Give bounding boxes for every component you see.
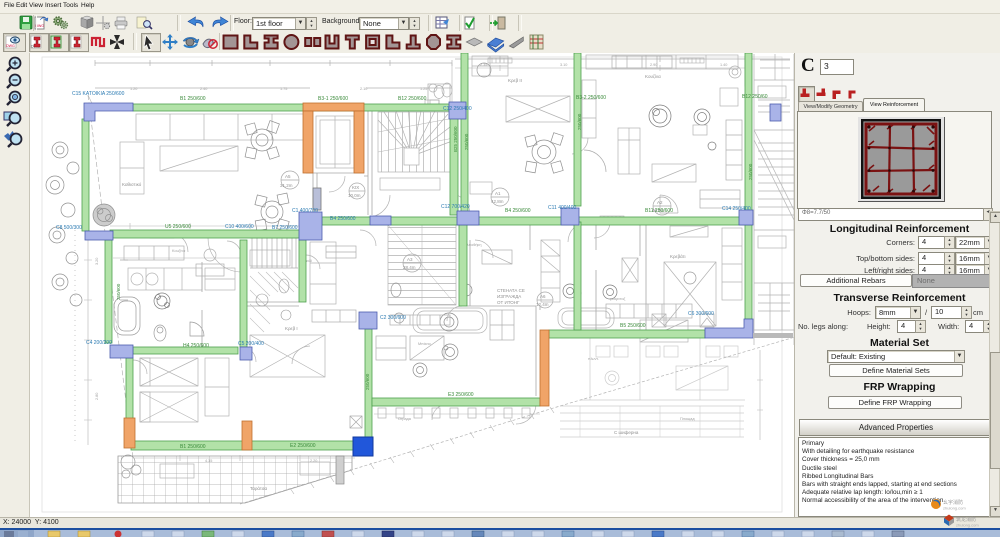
svg-text:C15 ΚΑΤΟΙΚΙΑ 250/600: C15 ΚΑΤΟΙΚΙΑ 250/600 <box>72 91 125 97</box>
svg-text:C6 300/600: C6 300/600 <box>688 311 714 317</box>
svg-text:C14 250/400: C14 250/400 <box>722 206 751 212</box>
svg-text:A6: A6 <box>540 294 546 299</box>
svg-text:ОТ ИТОНГ: ОТ ИТОНГ <box>497 300 520 305</box>
svg-text:Β3-2 250/600: Β3-2 250/600 <box>576 95 606 101</box>
svg-text:2.35: 2.35 <box>480 63 487 67</box>
svg-text:4.35: 4.35 <box>205 459 212 463</box>
svg-text:2.20: 2.20 <box>310 459 317 463</box>
svg-text:Κουζίνα: Κουζίνα <box>645 74 661 79</box>
svg-text:U5 250/600: U5 250/600 <box>165 224 191 230</box>
svg-text:2.90: 2.90 <box>650 63 657 67</box>
svg-text:A5: A5 <box>285 174 291 179</box>
svg-text:DWG: DWG <box>6 44 15 48</box>
svg-text:C8 500/300: C8 500/300 <box>56 225 82 231</box>
svg-text:Β1 250/600: Β1 250/600 <box>180 96 206 102</box>
svg-text:28,4m: 28,4m <box>403 265 416 270</box>
svg-text:3.10: 3.10 <box>560 63 567 67</box>
svg-text:1.40: 1.40 <box>720 63 727 67</box>
svg-text:1.25: 1.25 <box>420 87 427 91</box>
svg-text:πλυντ.: πλυντ. <box>588 357 599 361</box>
svg-text:Β11 250/600: Β11 250/600 <box>645 208 673 214</box>
svg-text:250/600: 250/600 <box>577 113 582 130</box>
svg-text:1.20: 1.20 <box>130 87 137 91</box>
svg-text:250/600: 250/600 <box>365 373 370 390</box>
svg-text:C11 400/400: C11 400/400 <box>548 205 576 211</box>
svg-text:Β1 250/600: Β1 250/600 <box>180 444 206 450</box>
svg-text:C2 300/600: C2 300/600 <box>380 315 406 321</box>
svg-text:Κρεβ II: Κρεβ II <box>508 78 522 83</box>
svg-text:Κρεβάτι: Κρεβάτι <box>670 253 686 259</box>
svg-text:Μπάνιο: Μπάνιο <box>418 342 431 346</box>
svg-text:1.75: 1.75 <box>280 87 287 91</box>
svg-text:Β4 250/600: Β4 250/600 <box>505 208 531 214</box>
svg-text:Κρεβ I: Κρεβ I <box>285 326 298 331</box>
svg-text:C12 250/400: C12 250/400 <box>443 106 472 112</box>
svg-text:250/600: 250/600 <box>748 163 753 180</box>
svg-text:Ограда: Ограда <box>398 417 412 421</box>
svg-text:31,2m: 31,2m <box>280 183 293 188</box>
svg-text:СТЕНАТА СЕ: СТЕНАТА СЕ <box>497 288 525 293</box>
svg-text:Β7 250/600: Β7 250/600 <box>272 225 298 231</box>
svg-text:Ε3 250/600: Ε3 250/600 <box>448 392 474 398</box>
svg-text:A2: A2 <box>657 200 663 205</box>
svg-text:3.20: 3.20 <box>95 258 99 265</box>
svg-text:Αποθήκη: Αποθήκη <box>466 243 481 247</box>
svg-text:Β12 250/60: Β12 250/60 <box>742 94 768 100</box>
svg-text:10,0m: 10,0m <box>348 193 361 198</box>
svg-text:Β12 250/600: Β12 250/600 <box>398 96 427 102</box>
svg-text:2.40: 2.40 <box>200 87 207 91</box>
svg-text:2.10: 2.10 <box>360 87 367 91</box>
svg-text:Β25 250/600: Β25 250/600 <box>453 126 458 152</box>
svg-text:Β5 250/600: Β5 250/600 <box>620 323 646 329</box>
svg-text:C1 400/700: C1 400/700 <box>292 208 318 214</box>
svg-text:250/600: 250/600 <box>464 133 469 150</box>
svg-text:C4 200/200: C4 200/200 <box>86 340 112 346</box>
svg-text:Η4 250/600: Η4 250/600 <box>183 343 209 349</box>
svg-text:Ε2 250/600: Ε2 250/600 <box>290 443 316 449</box>
svg-text:Β3-1 250/600: Β3-1 250/600 <box>318 96 348 102</box>
svg-text:42,8m: 42,8m <box>491 199 504 204</box>
svg-text:ИЗГРАЖДА: ИЗГРАЖДА <box>497 294 521 299</box>
svg-text:C10 400/600: C10 400/600 <box>225 224 254 230</box>
svg-text:KtX: KtX <box>352 185 359 190</box>
svg-text:C5 200/400: C5 200/400 <box>238 341 264 347</box>
svg-text:A1: A1 <box>495 191 501 196</box>
svg-text:zhulong.com: zhulong.com <box>956 523 979 528</box>
svg-text:γκαρνταζ: γκαρνταζ <box>610 297 626 301</box>
svg-text:A3: A3 <box>407 257 413 262</box>
svg-text:250/600: 250/600 <box>116 283 121 300</box>
svg-text:zhulong.com: zhulong.com <box>943 506 966 511</box>
svg-text:Ταράτσα: Ταράτσα <box>250 485 268 491</box>
svg-text:12,4m: 12,4m <box>536 302 549 307</box>
svg-text:С шиферна: С шиферна <box>614 430 639 435</box>
svg-text:Β4 250/600: Β4 250/600 <box>330 216 356 222</box>
svg-text:Καθιστικό: Καθιστικό <box>122 181 142 187</box>
svg-text:2.80: 2.80 <box>95 393 99 400</box>
svg-text:C12 700/420: C12 700/420 <box>441 204 470 210</box>
svg-text:Площад: Площад <box>680 417 695 421</box>
